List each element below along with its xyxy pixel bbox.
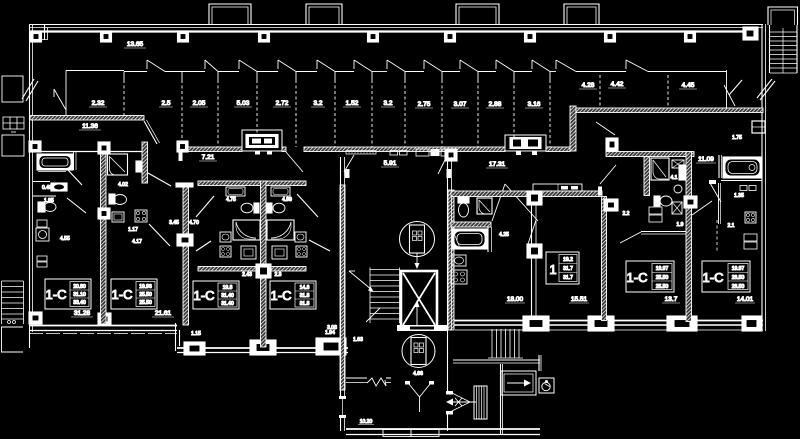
svg-text:28.50: 28.50 — [732, 275, 745, 281]
svg-text:11.36: 11.36 — [82, 123, 98, 130]
svg-text:31.40: 31.40 — [221, 293, 234, 299]
svg-text:1-C: 1-C — [627, 270, 648, 285]
svg-text:31.28: 31.28 — [74, 310, 91, 317]
svg-text:4.66: 4.66 — [413, 371, 423, 377]
svg-text:15.51: 15.51 — [571, 296, 588, 303]
svg-text:2.72: 2.72 — [276, 100, 289, 107]
svg-text:1.9: 1.9 — [677, 222, 684, 228]
svg-text:3.07: 3.07 — [454, 101, 467, 108]
svg-text:20.80: 20.80 — [73, 284, 86, 290]
svg-text:21.61: 21.61 — [155, 310, 172, 317]
svg-text:2.5: 2.5 — [161, 100, 170, 107]
svg-text:1.52: 1.52 — [346, 100, 359, 107]
svg-text:31.10: 31.10 — [73, 292, 86, 298]
svg-text:4.42: 4.42 — [611, 81, 624, 88]
svg-text:13.7: 13.7 — [665, 296, 678, 303]
svg-text:3.16: 3.16 — [528, 101, 541, 108]
svg-text:25.50: 25.50 — [656, 275, 669, 281]
svg-text:1.17: 1.17 — [128, 227, 138, 233]
svg-text:1.75: 1.75 — [732, 135, 742, 141]
svg-text:2.3: 2.3 — [275, 272, 282, 278]
svg-text:0.49: 0.49 — [42, 185, 52, 191]
svg-text:19.2: 19.2 — [563, 257, 573, 263]
svg-text:2.88: 2.88 — [489, 101, 502, 108]
svg-text:4.55: 4.55 — [60, 236, 70, 242]
svg-text:19.97: 19.97 — [656, 266, 669, 272]
svg-text:19.97: 19.97 — [732, 266, 745, 272]
svg-text:1-C: 1-C — [271, 288, 292, 303]
svg-text:25.50: 25.50 — [139, 292, 152, 298]
svg-text:13.65: 13.65 — [127, 41, 144, 48]
svg-text:19.8: 19.8 — [223, 285, 233, 291]
svg-text:4.45: 4.45 — [682, 82, 695, 89]
svg-text:1: 1 — [549, 262, 556, 277]
svg-text:18.00: 18.00 — [507, 296, 524, 303]
svg-text:4.1: 4.1 — [671, 175, 678, 181]
svg-text:31.40: 31.40 — [221, 301, 234, 307]
svg-text:4.28: 4.28 — [582, 82, 595, 89]
svg-text:1-C: 1-C — [112, 287, 133, 302]
svg-text:25.50: 25.50 — [656, 284, 669, 290]
svg-text:5.03: 5.03 — [237, 100, 250, 107]
svg-text:3.45: 3.45 — [169, 220, 179, 226]
svg-text:4.99: 4.99 — [282, 197, 292, 203]
svg-text:31.7: 31.7 — [563, 266, 573, 272]
svg-text:10.20: 10.20 — [360, 419, 373, 425]
svg-text:1-C: 1-C — [194, 288, 215, 303]
svg-text:25.50: 25.50 — [139, 300, 152, 306]
svg-text:4.70: 4.70 — [189, 220, 199, 226]
svg-text:2.05: 2.05 — [193, 100, 206, 107]
svg-text:33.40: 33.40 — [73, 300, 86, 306]
svg-text:1.15: 1.15 — [191, 331, 201, 337]
svg-text:1.63: 1.63 — [353, 337, 363, 343]
svg-text:4.17: 4.17 — [132, 239, 142, 245]
svg-text:31.8: 31.8 — [300, 293, 310, 299]
svg-text:3.03: 3.03 — [327, 325, 337, 331]
svg-text:5.91: 5.91 — [384, 160, 397, 167]
svg-text:2.75: 2.75 — [418, 101, 431, 108]
svg-text:28.50: 28.50 — [732, 284, 745, 290]
svg-text:4.02: 4.02 — [118, 182, 128, 188]
svg-text:1-C: 1-C — [46, 287, 67, 302]
svg-text:4.25: 4.25 — [499, 232, 509, 238]
svg-text:7.21: 7.21 — [202, 154, 215, 161]
svg-text:1-C: 1-C — [703, 270, 724, 285]
svg-text:2.1: 2.1 — [728, 223, 735, 229]
svg-text:2.32: 2.32 — [92, 100, 105, 107]
svg-text:3.2: 3.2 — [313, 100, 322, 107]
svg-text:2.43: 2.43 — [242, 272, 252, 278]
svg-text:19.96: 19.96 — [139, 284, 152, 290]
svg-text:31.7: 31.7 — [563, 275, 573, 281]
svg-text:17.31: 17.31 — [489, 161, 506, 168]
svg-text:1.35: 1.35 — [734, 193, 744, 199]
svg-text:3.2: 3.2 — [383, 100, 392, 107]
svg-text:4.75: 4.75 — [226, 197, 236, 203]
svg-text:14.8: 14.8 — [300, 285, 310, 291]
svg-text:2.2: 2.2 — [623, 211, 630, 217]
svg-text:11.09: 11.09 — [698, 156, 714, 163]
svg-text:14.01: 14.01 — [737, 296, 754, 303]
svg-text:31.8: 31.8 — [300, 301, 310, 307]
